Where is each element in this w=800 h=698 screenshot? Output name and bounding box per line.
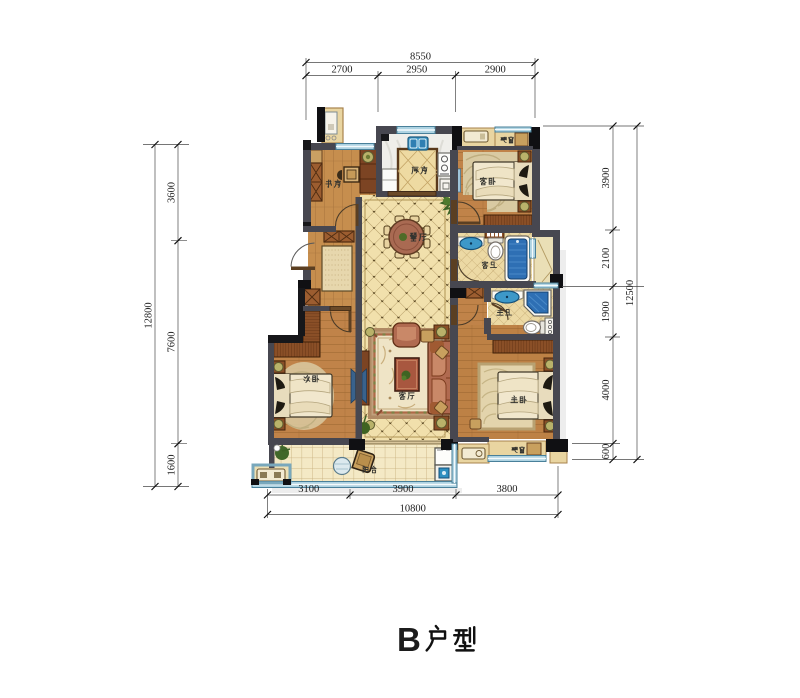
svg-text:2950: 2950	[406, 65, 427, 76]
svg-text:3900: 3900	[601, 168, 612, 189]
svg-text:3800: 3800	[497, 484, 518, 495]
svg-text:12500: 12500	[625, 280, 636, 306]
svg-text:1900: 1900	[601, 301, 612, 322]
svg-text:2900: 2900	[485, 65, 506, 76]
svg-text:B: B	[397, 621, 421, 658]
svg-text:8550: 8550	[410, 52, 431, 63]
svg-text:10800: 10800	[400, 504, 426, 515]
svg-text:2100: 2100	[601, 248, 612, 269]
svg-text:7600: 7600	[167, 332, 178, 353]
svg-text:3100: 3100	[298, 484, 319, 495]
svg-text:2700: 2700	[332, 65, 353, 76]
svg-text:1600: 1600	[167, 455, 178, 476]
svg-text:3600: 3600	[167, 182, 178, 203]
svg-text:12800: 12800	[144, 302, 155, 328]
svg-text:3900: 3900	[393, 484, 414, 495]
svg-text:4000: 4000	[601, 380, 612, 401]
svg-text:600: 600	[601, 444, 612, 460]
